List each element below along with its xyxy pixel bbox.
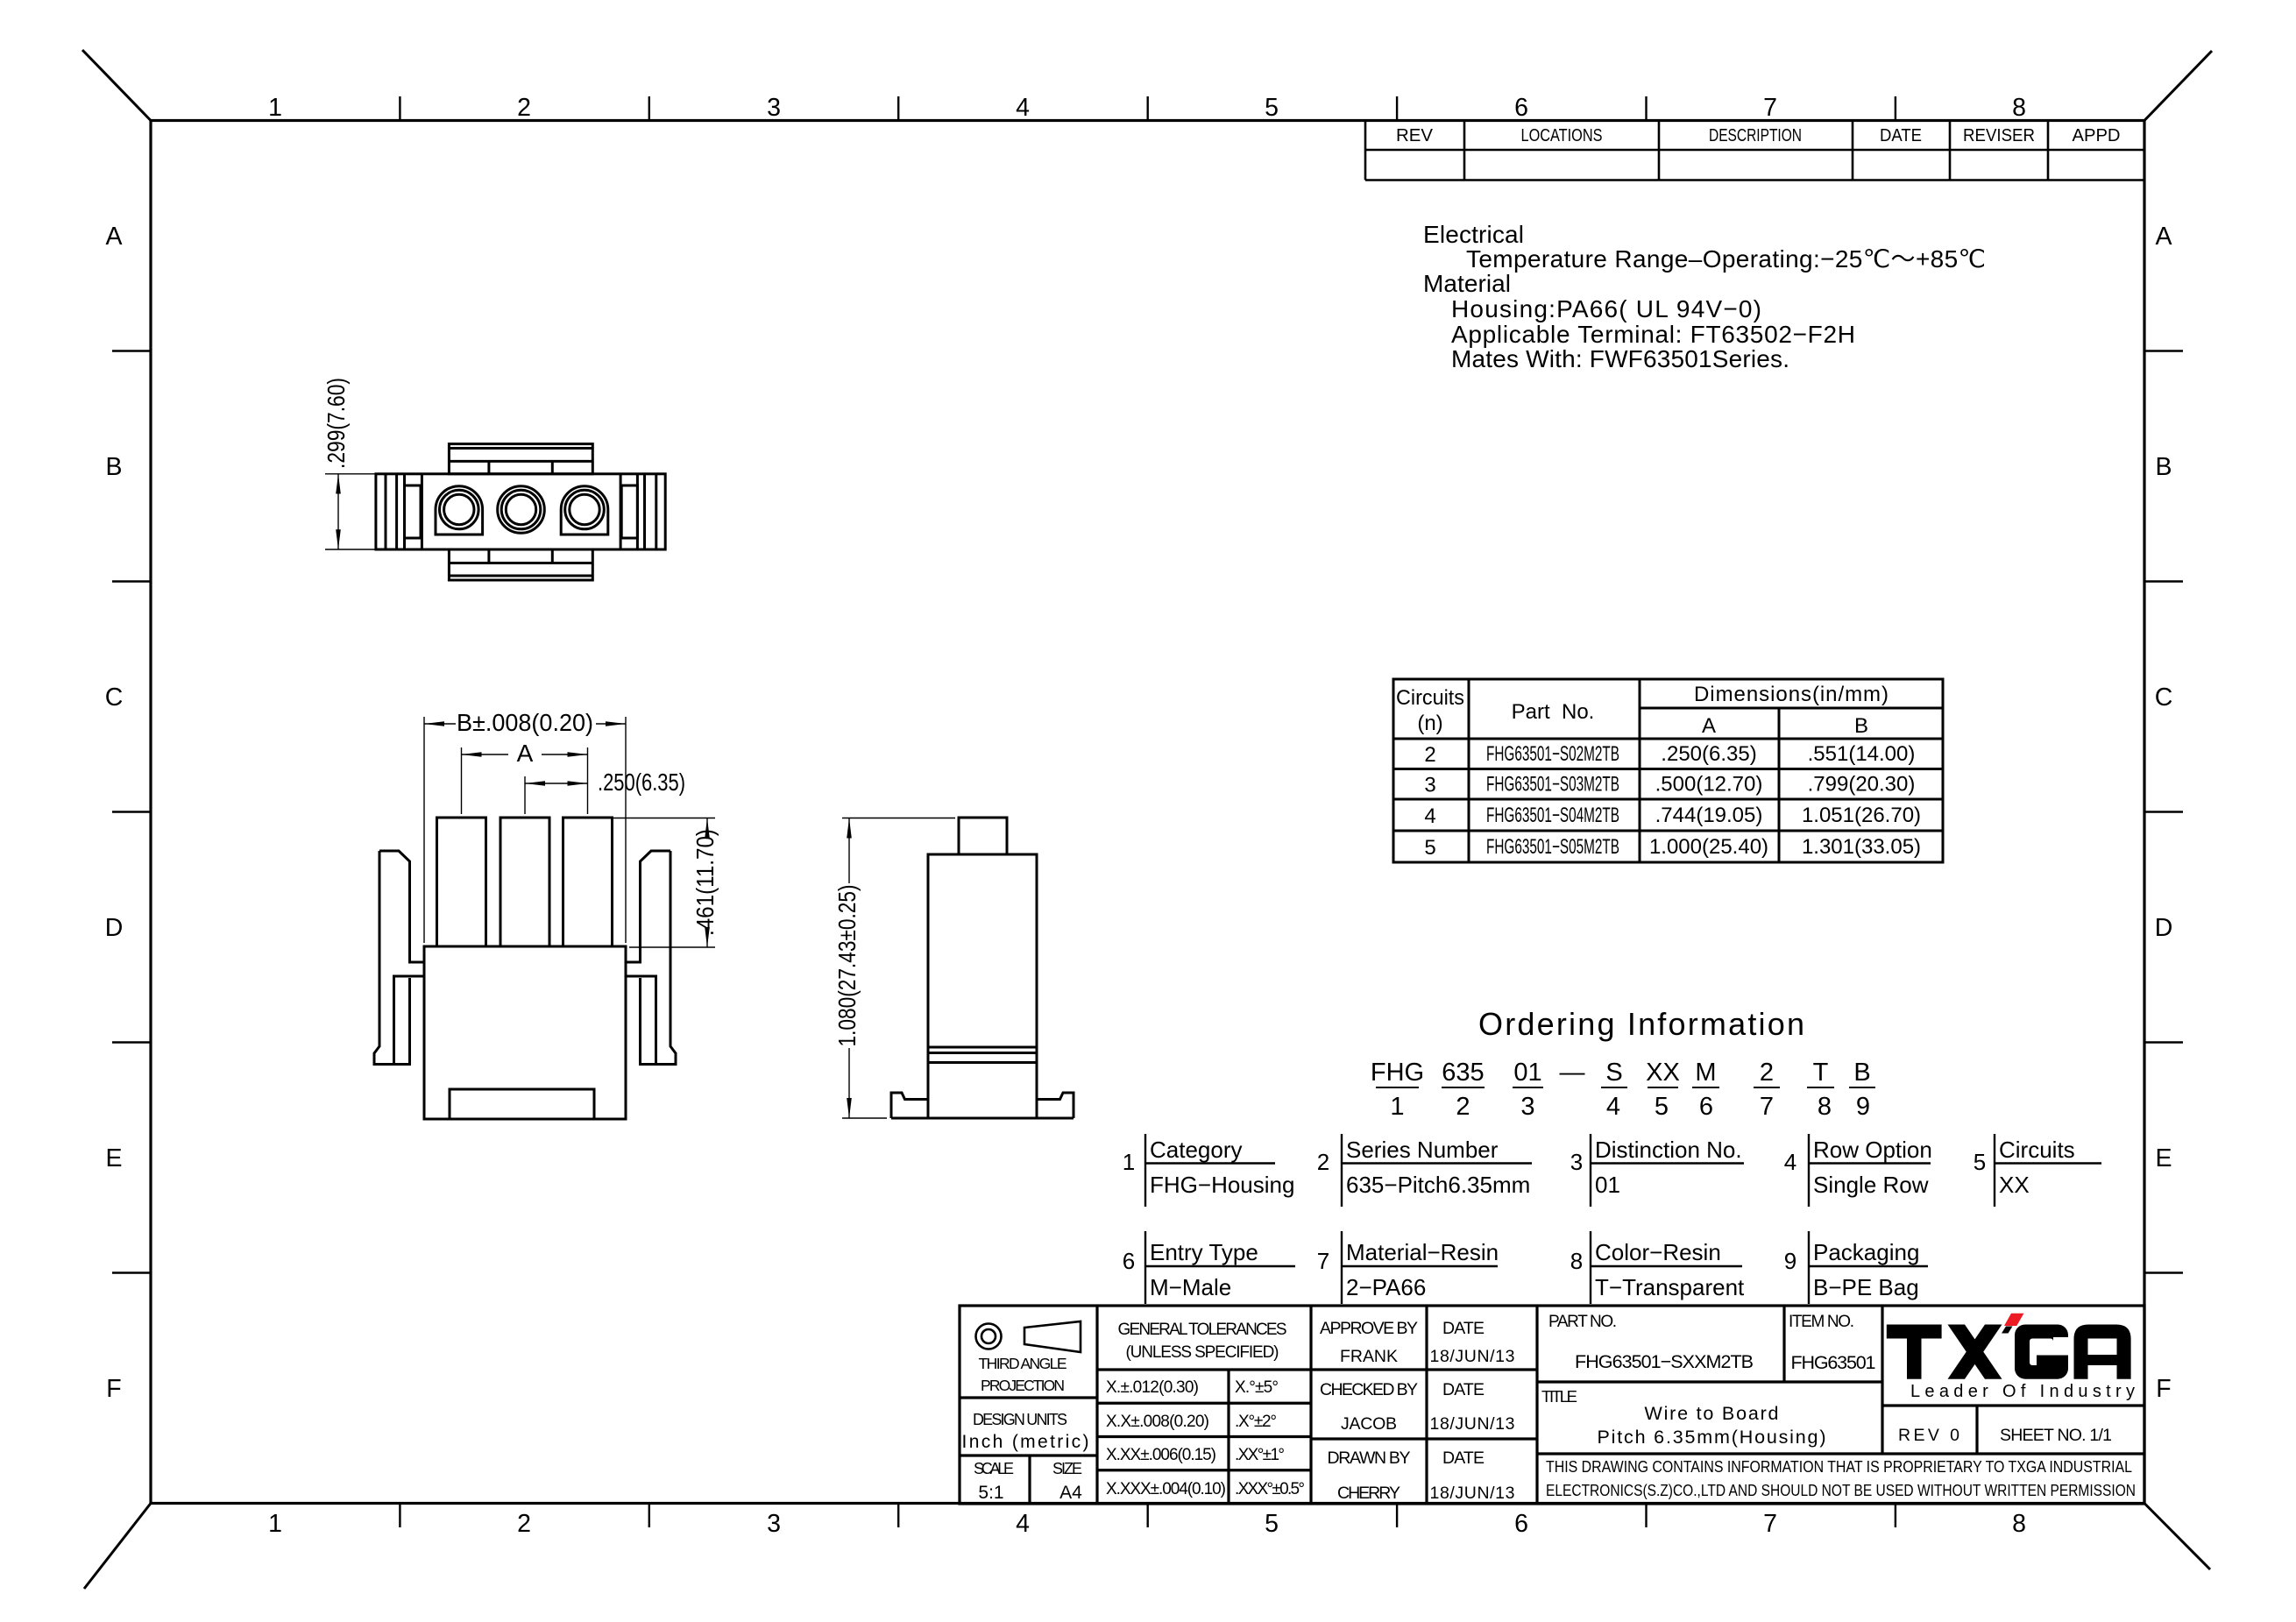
svg-text:2: 2 [517,1510,531,1538]
svg-text:Part No.: Part No. [1512,700,1595,724]
svg-text:XX: XX [1999,1172,2030,1198]
svg-text:Circuits: Circuits [1999,1137,2075,1163]
svg-text:4: 4 [1424,804,1435,828]
svg-text:.250(6.35): .250(6.35) [598,769,685,796]
svg-text:APPROVE BY: APPROVE BY [1320,1319,1418,1338]
svg-text:DATE: DATE [1880,126,1922,145]
svg-text:A: A [1702,714,1716,738]
svg-text:5: 5 [1424,836,1435,860]
svg-text:.XXX°±0.5°: .XXX°±0.5° [1235,1480,1305,1498]
svg-text:Distinction No.: Distinction No. [1595,1137,1742,1163]
svg-text:GENERAL TOLERANCES: GENERAL TOLERANCES [1118,1321,1287,1339]
svg-text:Category: Category [1150,1137,1243,1163]
svg-text:7: 7 [1763,1510,1777,1538]
svg-text:5: 5 [1974,1149,1986,1175]
svg-text:635−Pitch6.35mm: 635−Pitch6.35mm [1346,1172,1530,1198]
svg-text:M: M [1695,1059,1716,1087]
svg-text:8: 8 [2012,1510,2026,1538]
svg-text:SCALE: SCALE [974,1460,1014,1477]
svg-text:FHG63501−SXXM2TB: FHG63501−SXXM2TB [1575,1351,1754,1372]
svg-text:Dimensions(in/mm): Dimensions(in/mm) [1694,683,1889,706]
svg-text:3: 3 [767,1510,781,1538]
svg-text:1.080(27.43±0.25): 1.080(27.43±0.25) [833,885,861,1047]
svg-text:18/JUN/13: 18/JUN/13 [1430,1484,1515,1503]
svg-text:2: 2 [1760,1059,1774,1087]
svg-text:5: 5 [1265,94,1279,122]
svg-text:.250(6.35): .250(6.35) [1661,742,1756,766]
svg-text:1: 1 [268,94,282,122]
svg-text:FRANK: FRANK [1340,1347,1398,1366]
svg-text:18/JUN/13: 18/JUN/13 [1430,1347,1515,1366]
svg-text:PART NO.: PART NO. [1548,1313,1617,1331]
svg-text:01: 01 [1513,1059,1541,1087]
svg-text:4: 4 [1016,1510,1030,1538]
svg-text:635: 635 [1442,1059,1484,1087]
svg-text:A4: A4 [1059,1483,1082,1503]
svg-text:5: 5 [1655,1093,1669,1121]
svg-text:1.301(33.05): 1.301(33.05) [1802,835,1921,859]
svg-text:F: F [2156,1375,2171,1403]
svg-text:(n): (n) [1417,712,1442,735]
svg-text:6: 6 [1514,1510,1528,1538]
svg-text:4: 4 [1606,1093,1620,1121]
svg-text:C: C [105,684,124,712]
svg-text:ELECTRONICS(S.Z)CO.,LTD AND SH: ELECTRONICS(S.Z)CO.,LTD AND SHOULD NOT B… [1546,1481,2136,1499]
svg-text:8: 8 [1818,1093,1832,1121]
svg-text:5: 5 [1265,1510,1279,1538]
svg-text:2: 2 [1456,1093,1470,1121]
svg-text:F: F [106,1375,121,1403]
svg-text:6: 6 [1123,1248,1135,1274]
svg-text:7: 7 [1760,1093,1774,1121]
svg-text:DATE: DATE [1442,1319,1485,1338]
svg-text:—: — [1560,1059,1585,1087]
svg-text:B±.008(0.20): B±.008(0.20) [457,709,593,736]
svg-text:Color−Resin: Color−Resin [1595,1239,1721,1265]
svg-text:1.051(26.70): 1.051(26.70) [1802,804,1921,827]
svg-text:6: 6 [1514,94,1528,122]
svg-text:XX: XX [1646,1059,1680,1087]
svg-text:THIRD ANGLE: THIRD ANGLE [979,1355,1067,1372]
svg-text:9: 9 [1784,1248,1796,1274]
svg-text:1: 1 [1123,1149,1135,1175]
svg-text:Single Row: Single Row [1813,1172,1929,1198]
svg-text:FHG63501: FHG63501 [1791,1352,1876,1373]
svg-text:7: 7 [1763,94,1777,122]
svg-text:T−Transparent: T−Transparent [1595,1274,1745,1300]
svg-text:A: A [105,223,122,251]
svg-text:C: C [2155,684,2173,712]
svg-text:B: B [1853,1059,1870,1087]
svg-text:2: 2 [1317,1149,1329,1175]
svg-text:B: B [105,453,122,481]
svg-text:2: 2 [1424,743,1435,767]
svg-text:2: 2 [517,94,531,122]
svg-text:.500(12.70): .500(12.70) [1655,773,1763,797]
svg-text:9: 9 [1856,1093,1870,1121]
svg-text:FHG−Housing: FHG−Housing [1150,1172,1294,1198]
svg-text:CHECKED BY: CHECKED BY [1320,1380,1418,1399]
svg-text:4: 4 [1016,94,1030,122]
svg-text:2−PA66: 2−PA66 [1346,1274,1426,1300]
svg-text:.X°±2°: .X°±2° [1235,1413,1277,1431]
svg-text:DRAWN BY: DRAWN BY [1328,1448,1411,1468]
svg-text:E: E [105,1144,122,1172]
svg-text:DATE: DATE [1442,1380,1485,1399]
svg-text:X.°±5°: X.°±5° [1235,1378,1279,1397]
svg-text:.799(20.30): .799(20.30) [1808,773,1916,797]
svg-text:SHEET NO. 1/1: SHEET NO. 1/1 [2000,1426,2112,1445]
svg-text:TITLE: TITLE [1541,1387,1577,1406]
svg-text:1.000(25.40): 1.000(25.40) [1649,835,1768,859]
svg-text:REVISER: REVISER [1963,126,2035,145]
svg-text:Electrical: Electrical [1423,221,1524,248]
svg-text:3: 3 [1424,774,1435,797]
svg-text:M−Male: M−Male [1150,1274,1231,1300]
svg-text:3: 3 [1570,1149,1583,1175]
svg-text:.XX°±1°: .XX°±1° [1235,1446,1285,1464]
svg-text:A: A [517,740,534,767]
svg-text:8: 8 [2012,94,2026,122]
svg-text:1: 1 [268,1510,282,1538]
svg-text:D: D [2155,914,2173,942]
svg-text:E: E [2155,1144,2172,1172]
svg-text:Pitch 6.35mm(Housing): Pitch 6.35mm(Housing) [1598,1427,1826,1448]
svg-text:DESIGN UNITS: DESIGN UNITS [973,1411,1067,1428]
svg-text:.744(19.05): .744(19.05) [1655,804,1763,827]
svg-text:7: 7 [1317,1248,1329,1274]
svg-text:Series Number: Series Number [1346,1137,1499,1163]
svg-text:6: 6 [1699,1093,1713,1121]
svg-text:FHG: FHG [1371,1059,1424,1087]
svg-text:FHG63501−S02M2TB: FHG63501−S02M2TB [1486,742,1619,766]
svg-text:Housing:PA66( UL 94V−0): Housing:PA66( UL 94V−0) [1451,295,1761,322]
svg-text:DATE: DATE [1442,1448,1485,1468]
svg-text:3: 3 [767,94,781,122]
svg-text:SIZE: SIZE [1052,1460,1082,1477]
svg-text:Leader Of Industry: Leader Of Industry [1910,1382,2135,1401]
svg-text:PROJECTION: PROJECTION [981,1377,1065,1394]
svg-text:FHG63501−S03M2TB: FHG63501−S03M2TB [1486,773,1619,797]
svg-text:Circuits: Circuits [1396,686,1464,710]
svg-text:REV 0: REV 0 [1898,1426,1959,1445]
svg-text:X.X±.008(0.20): X.X±.008(0.20) [1106,1413,1209,1431]
svg-text:ITEM NO.: ITEM NO. [1789,1313,1854,1331]
svg-text:5:1: 5:1 [978,1483,1003,1503]
svg-text:3: 3 [1520,1093,1534,1121]
svg-text:D: D [105,914,124,942]
svg-text:.551(14.00): .551(14.00) [1808,742,1916,766]
svg-text:X.XX±.006(0.15): X.XX±.006(0.15) [1106,1446,1216,1464]
svg-text:JACOB: JACOB [1341,1414,1397,1434]
svg-text:LOCATIONS: LOCATIONS [1521,126,1603,145]
svg-text:X.XXX±.004(0.10): X.XXX±.004(0.10) [1106,1480,1226,1498]
svg-text:18/JUN/13: 18/JUN/13 [1430,1414,1515,1434]
svg-text:THIS DRAWING CONTAINS INFORMAT: THIS DRAWING CONTAINS INFORMATION THAT I… [1546,1457,2132,1476]
svg-text:4: 4 [1784,1149,1796,1175]
svg-text:01: 01 [1595,1172,1620,1198]
svg-text:APPD: APPD [2073,126,2121,145]
svg-text:B: B [2155,453,2172,481]
svg-text:REV: REV [1396,126,1434,145]
svg-text:Wire to Board: Wire to Board [1645,1403,1779,1424]
svg-text:Material: Material [1423,270,1511,297]
svg-text:Material−Resin: Material−Resin [1346,1239,1499,1265]
svg-text:.461(11.70): .461(11.70) [691,829,719,936]
svg-text:Entry Type: Entry Type [1150,1239,1258,1265]
svg-text:1: 1 [1390,1093,1404,1121]
svg-text:S: S [1605,1059,1622,1087]
svg-text:B−PE Bag: B−PE Bag [1813,1274,1919,1300]
svg-text:Applicable Terminal: FT63502−F: Applicable Terminal: FT63502−F2H [1451,321,1855,348]
svg-text:DESCRIPTION: DESCRIPTION [1709,126,1802,145]
svg-text:A: A [2155,223,2172,251]
svg-text:Packaging: Packaging [1813,1239,1919,1265]
svg-text:Mates With: FWF63501Series.: Mates With: FWF63501Series. [1451,345,1789,372]
svg-text:Row Option: Row Option [1813,1137,1932,1163]
svg-text:X.±.012(0.30): X.±.012(0.30) [1106,1378,1199,1397]
svg-text:FHG63501−S04M2TB: FHG63501−S04M2TB [1486,804,1619,827]
svg-text:.299(7.60): .299(7.60) [322,378,350,469]
svg-text:Ordering Information: Ordering Information [1478,1006,1804,1042]
svg-text:8: 8 [1570,1248,1583,1274]
svg-text:FHG63501−S05M2TB: FHG63501−S05M2TB [1486,835,1619,859]
svg-text:CHERRY: CHERRY [1337,1484,1400,1503]
svg-text:B: B [1854,714,1868,738]
svg-text:(UNLESS SPECIFIED): (UNLESS SPECIFIED) [1126,1343,1279,1362]
svg-text:T: T [1813,1059,1829,1087]
svg-text:Temperature Range–Operating:−2: Temperature Range–Operating:−25℃～+85℃ [1466,245,1986,273]
